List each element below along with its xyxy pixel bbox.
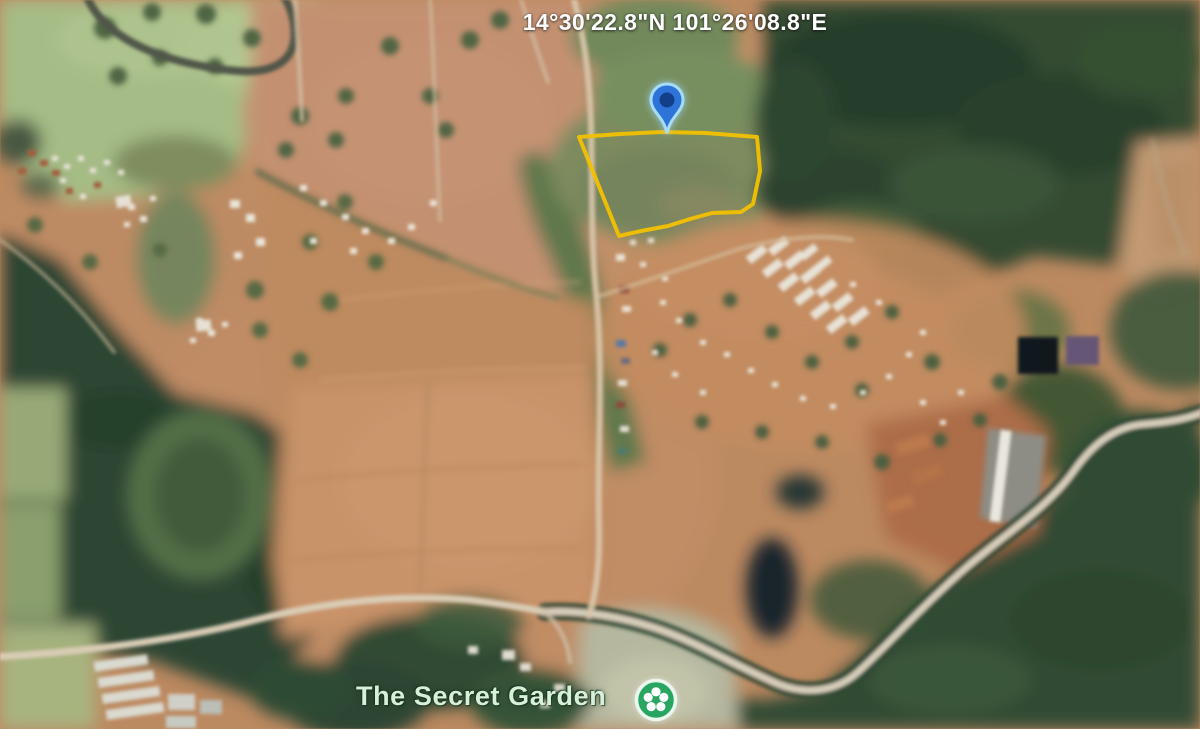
map-canvas[interactable] [0, 0, 1200, 729]
coordinates-label: 14°30'22.8"N 101°26'08.8"E [523, 9, 828, 36]
pond [113, 135, 237, 191]
place-label[interactable]: The Secret Garden [356, 681, 606, 712]
dark-pond [746, 538, 798, 638]
dark-panel [1018, 337, 1058, 374]
attraction-flower-icon[interactable] [632, 676, 680, 724]
satellite-imagery [0, 0, 1200, 729]
satellite-map-screenshot: 14°30'22.8"N 101°26'08.8"E The Secret Ga… [0, 0, 1200, 729]
location-pin-icon[interactable] [645, 80, 689, 140]
flower-center [652, 696, 659, 703]
pin-core [660, 93, 675, 108]
